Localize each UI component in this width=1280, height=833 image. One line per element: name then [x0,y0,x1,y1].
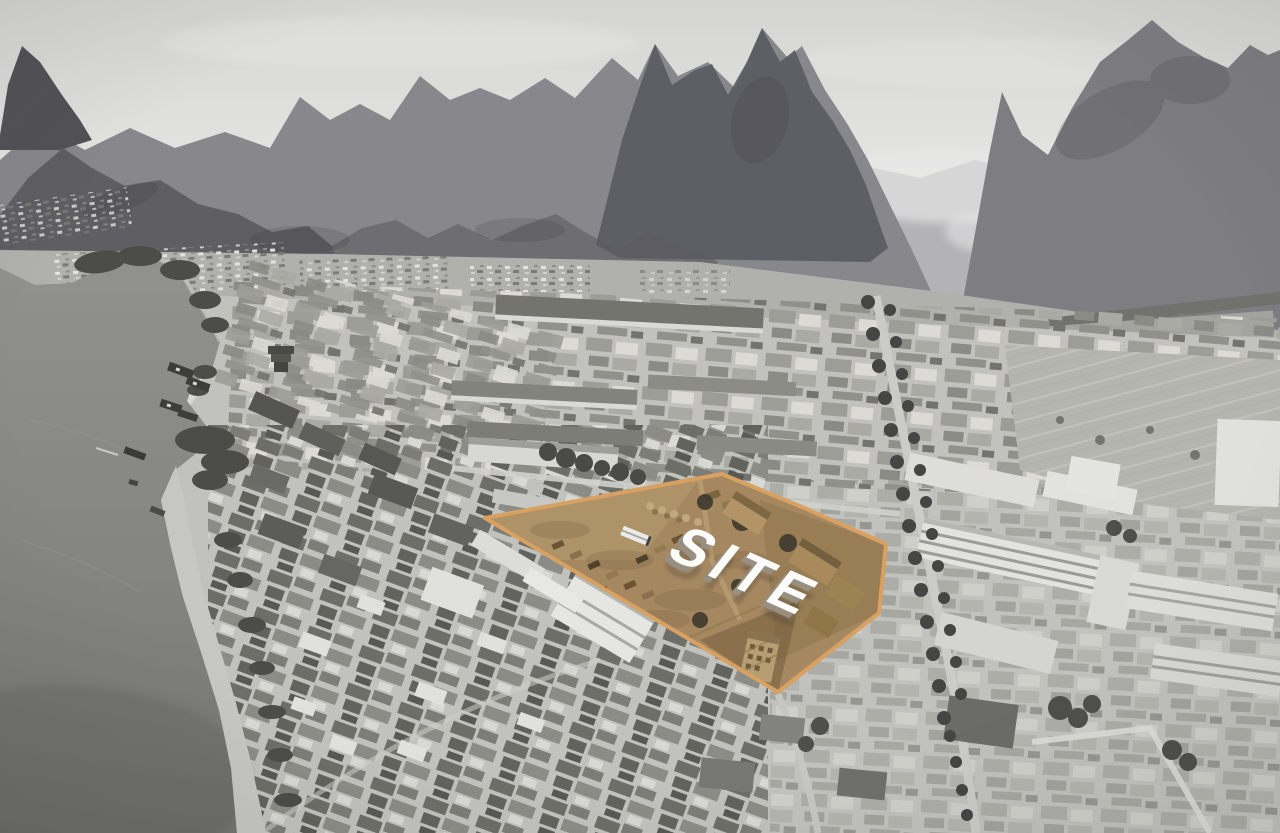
scene-canvas: SITE SITE SITE [0,0,1280,833]
photo-vignette [0,0,1280,833]
aerial-site-photograph: SITE SITE SITE [0,0,1280,833]
